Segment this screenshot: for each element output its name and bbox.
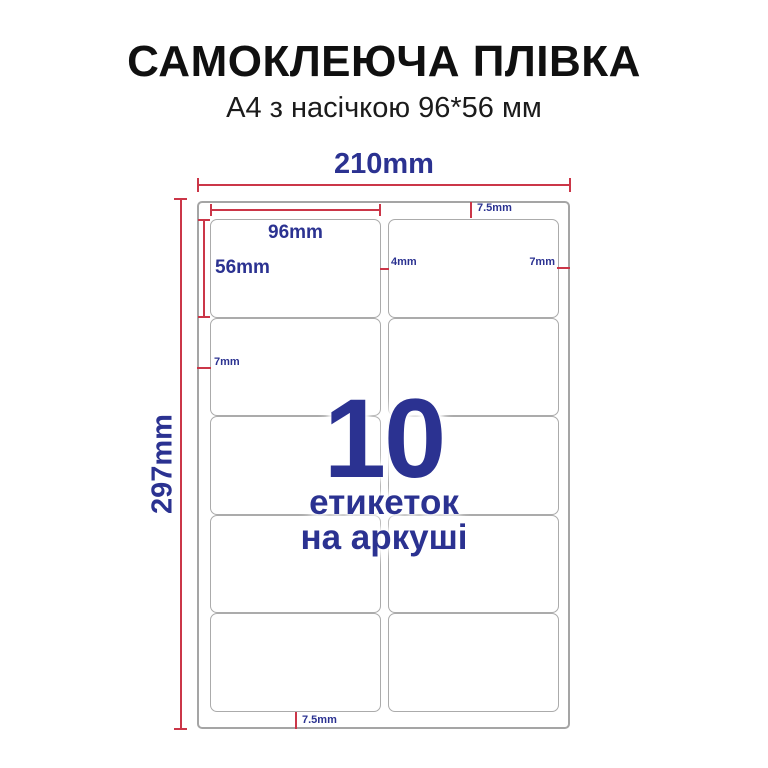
right-margin-label: 7mm [505,257,555,268]
dim-tick-right-margin [557,267,570,269]
dim-line-label-height [203,219,205,318]
page-subtitle: А4 з насічкою 96*56 мм [0,93,768,125]
label-cell [388,613,559,712]
dim-tick [197,178,199,192]
dim-tick [174,198,187,200]
dim-line-sheet-height [180,198,182,730]
column-gap-label: 4mm [391,257,417,268]
label-cell [210,613,381,712]
top-margin-label: 7.5mm [477,203,512,214]
dim-tick-top-margin [470,202,472,218]
sheet-height-label: 297mm [149,414,178,514]
labels-count-caption-line1: етикеток [197,485,571,520]
dim-line-sheet-width [197,184,571,186]
label-cell [388,219,559,318]
labels-count-block: 10 етикеток на аркуші [197,393,571,555]
dim-line-label-width [210,209,381,211]
dim-tick-left-margin [197,367,211,369]
dim-tick [174,728,187,730]
left-margin-label: 7mm [214,357,240,368]
labels-count-caption-line2: на аркуші [197,520,571,555]
page-title: САМОКЛЕЮЧА ПЛІВКА [0,40,768,84]
dim-tick [198,316,210,318]
dim-tick-bottom-margin [295,712,297,729]
dim-tick [569,178,571,192]
labels-count: 10 [197,393,571,485]
dim-tick [210,204,212,216]
dim-tick-column-gap [380,268,389,270]
label-height-label: 56mm [215,258,270,277]
bottom-margin-label: 7.5mm [302,715,337,726]
sheet-width-label: 210mm [197,150,571,179]
dim-tick [379,204,381,216]
product-diagram-page: САМОКЛЕЮЧА ПЛІВКА А4 з насічкою 96*56 мм… [0,0,768,768]
dim-tick [198,219,210,221]
label-width-label: 96mm [210,223,381,242]
